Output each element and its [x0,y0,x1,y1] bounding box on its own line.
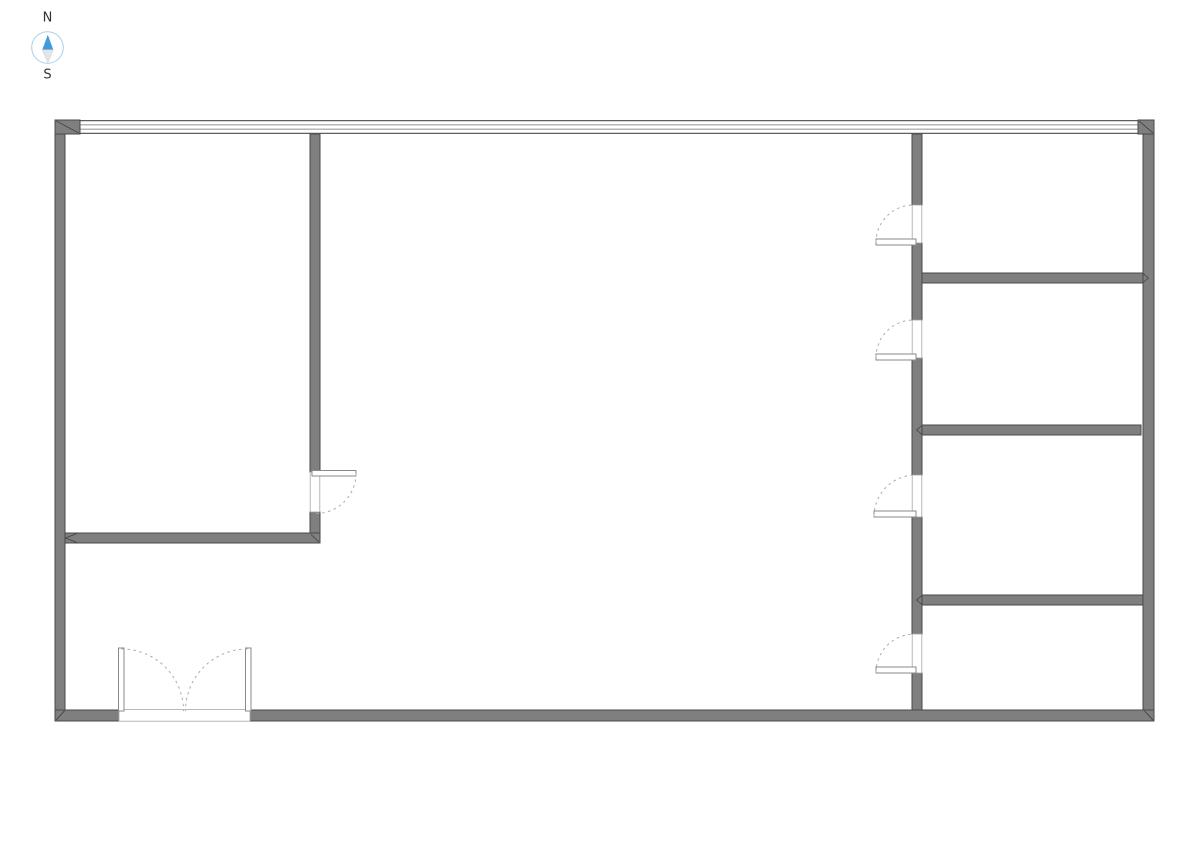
wall-exterior-left [55,134,65,710]
wall-corridor-segment-2 [912,243,922,320]
floor-plan-drawing: NS [0,0,1191,842]
door-swing-left-room [316,474,356,514]
door-swing-room-2 [876,320,914,358]
door-leaf-room-2 [876,354,916,360]
door-swing-room-1 [876,205,914,243]
compass-label-north: N [43,11,53,26]
wall-corridor-segment-3 [912,358,922,475]
wall-corridor-segment-5 [912,673,922,710]
door-leaf-room-4 [876,667,916,673]
wall-corridor-segment-4 [912,517,922,634]
wall-corridor-segment-1 [912,134,922,205]
entrance-door-leaf-left [119,648,125,711]
entrance-swing-right [186,649,248,711]
wall-left-room-vertical [310,134,320,472]
door-swing-room-3 [874,475,916,517]
wall-right-room-divider-1 [922,273,1143,283]
wall-exterior-right [1143,134,1154,710]
door-opening-room-1 [912,205,922,243]
entrance-door-leaf-right [246,648,252,711]
door-opening-left-room [310,472,320,512]
floor-plan-canvas: NS [0,0,1191,842]
door-leaf-room-3 [874,511,916,517]
door-leaf-left-room [312,471,356,477]
door-opening-room-2 [912,320,922,358]
compass-label-south: S [43,68,51,83]
wall-left-room-horizontal [65,533,320,543]
wall-left-room-stub [310,512,320,534]
door-leaf-room-1 [876,239,916,245]
entrance-swing-left [122,649,184,711]
wall-right-room-divider-3 [922,595,1143,605]
wall-right-room-divider-2 [922,425,1141,435]
entrance-door-opening [119,710,250,722]
